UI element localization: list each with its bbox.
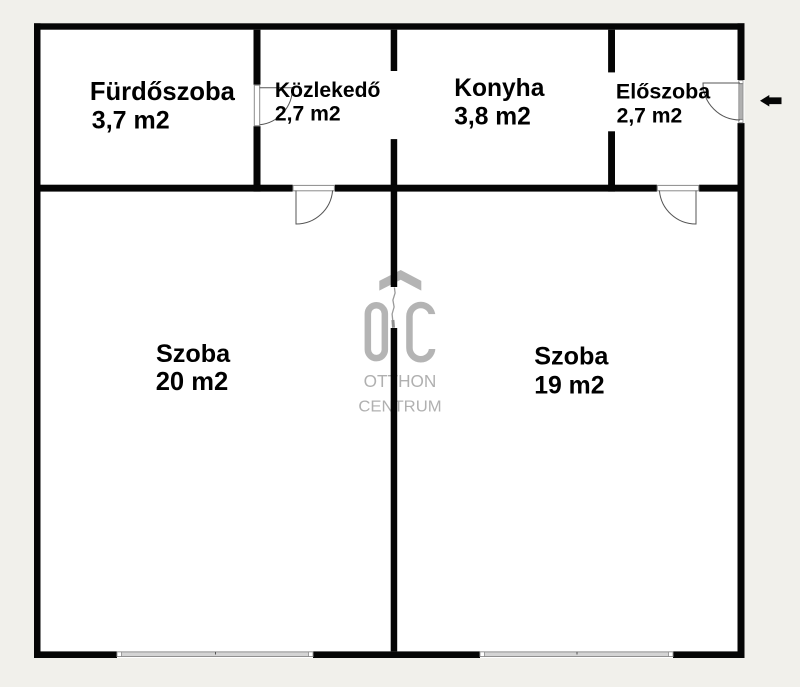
svg-text:CENTRUM: CENTRUM — [358, 399, 441, 416]
svg-text:2,7 m2: 2,7 m2 — [617, 104, 683, 127]
svg-text:3,8 m2: 3,8 m2 — [454, 104, 531, 131]
svg-text:Közlekedő: Közlekedő — [275, 79, 381, 102]
svg-text:Konyha: Konyha — [454, 75, 545, 102]
svg-text:3,7 m2: 3,7 m2 — [92, 107, 170, 135]
svg-text:Előszoba: Előszoba — [616, 80, 711, 104]
svg-text:OTTHON: OTTHON — [364, 371, 437, 391]
svg-text:Szoba: Szoba — [156, 340, 231, 368]
svg-text:20 m2: 20 m2 — [156, 368, 229, 396]
svg-text:2,7 m2: 2,7 m2 — [275, 103, 341, 126]
svg-text:Szoba: Szoba — [534, 343, 609, 371]
svg-text:19 m2: 19 m2 — [534, 373, 604, 400]
svg-text:Fürdőszoba: Fürdőszoba — [90, 78, 236, 106]
